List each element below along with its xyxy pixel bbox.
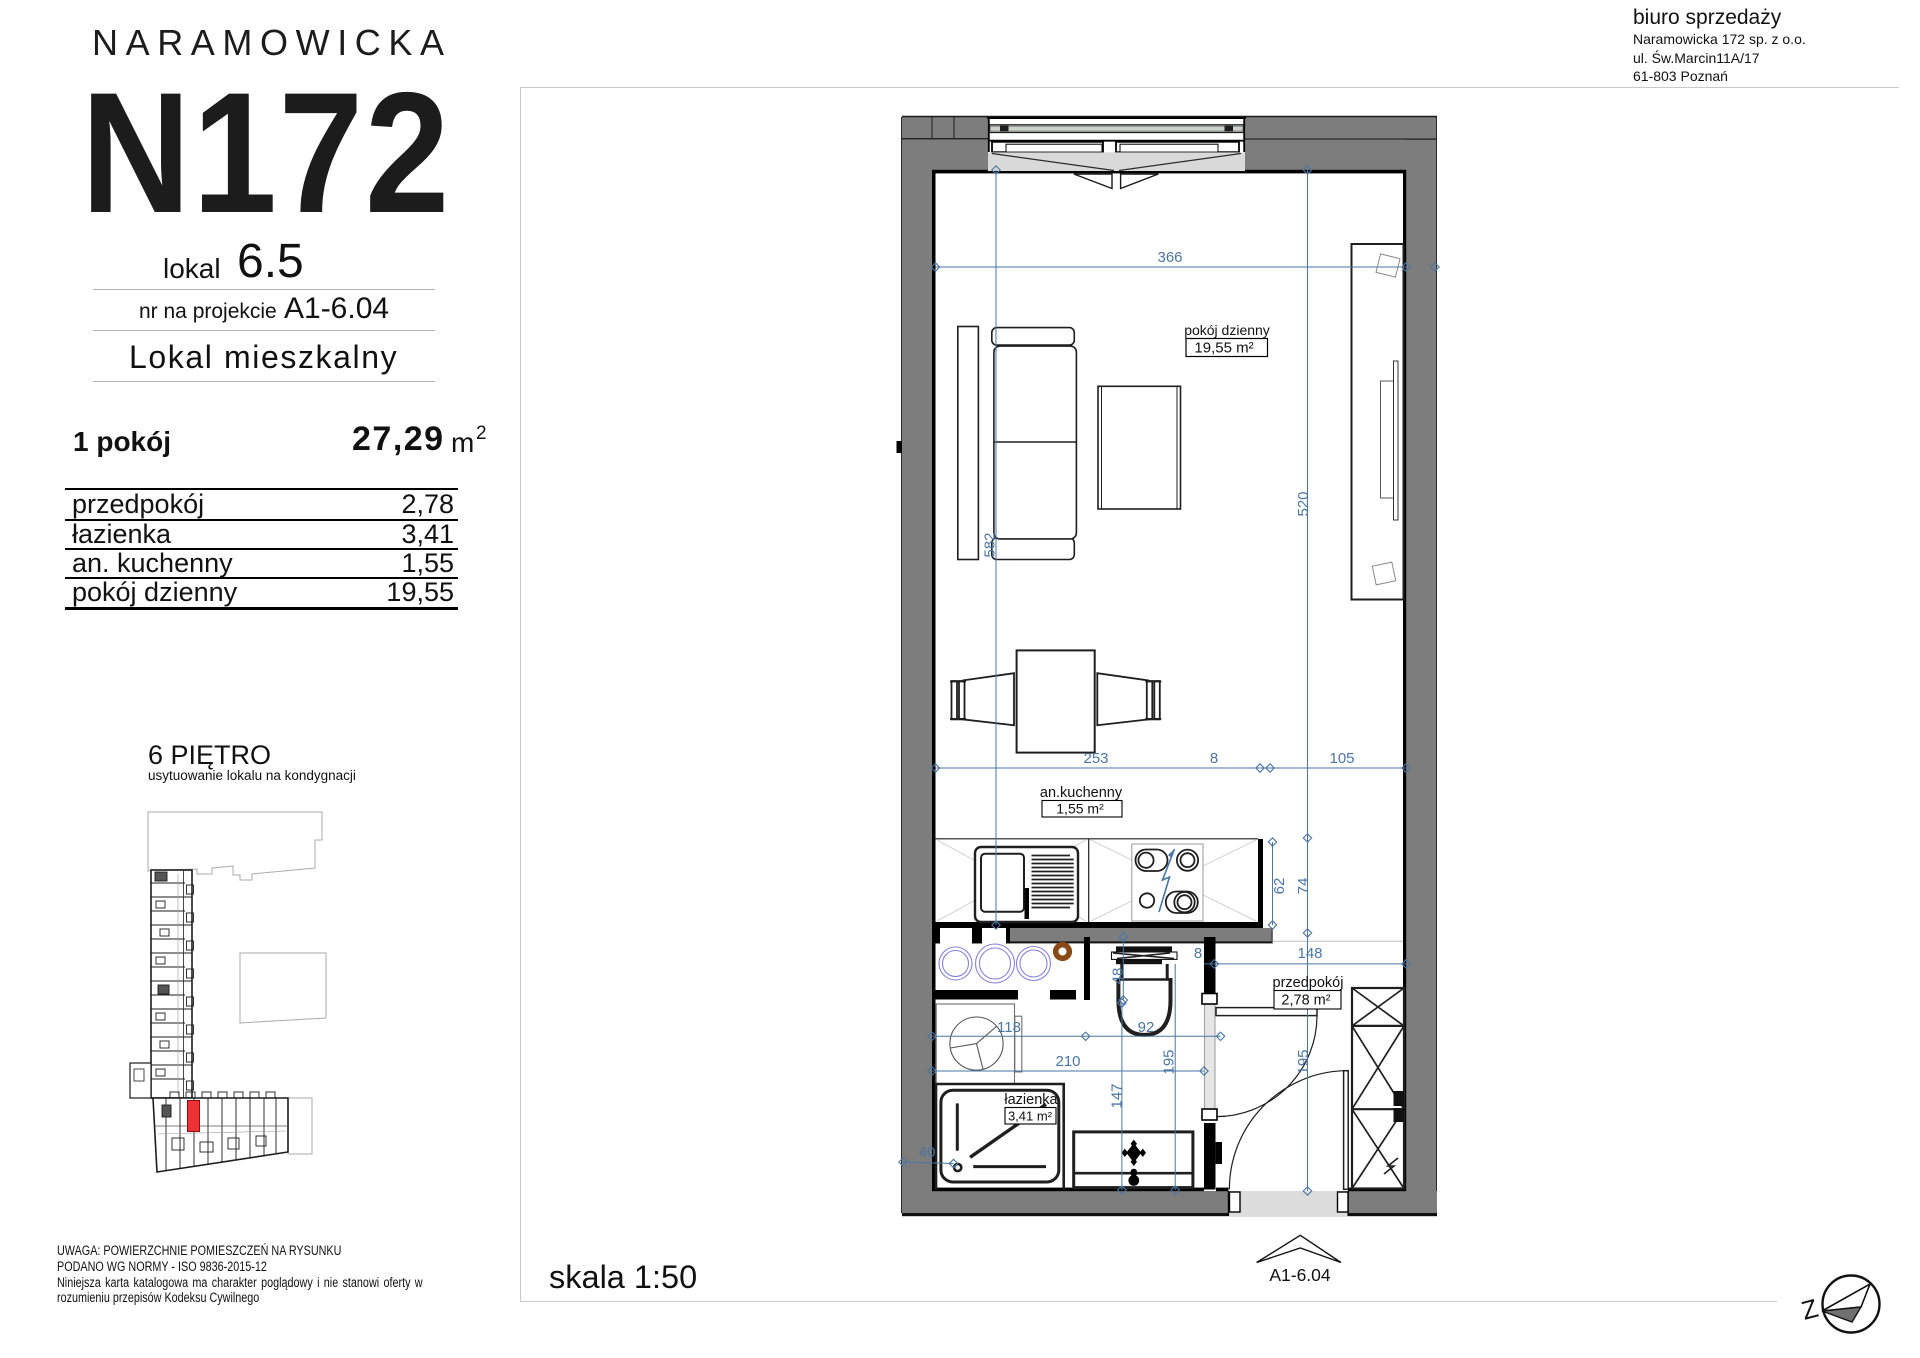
svg-text:74: 74 [1295, 878, 1312, 895]
svg-text:366: 366 [1157, 249, 1182, 266]
svg-text:147: 147 [1109, 1083, 1126, 1108]
svg-text:2,78 m²: 2,78 m² [1281, 993, 1330, 1009]
svg-text:520: 520 [1295, 491, 1312, 516]
svg-text:148: 148 [1297, 945, 1322, 962]
svg-text:Z: Z [1798, 1293, 1821, 1326]
svg-text:253: 253 [1083, 750, 1108, 767]
svg-text:195: 195 [1295, 1049, 1312, 1074]
svg-text:105: 105 [1329, 750, 1354, 767]
svg-text:92: 92 [1138, 1019, 1155, 1036]
svg-text:62: 62 [1271, 878, 1288, 895]
svg-text:łazienka: łazienka [1004, 1092, 1058, 1108]
svg-text:8: 8 [1194, 945, 1202, 962]
svg-text:195: 195 [1161, 1049, 1178, 1074]
svg-text:118: 118 [997, 1019, 1021, 1036]
svg-text:pokój dzienny: pokój dzienny [1184, 322, 1270, 338]
svg-text:210: 210 [1055, 1053, 1080, 1070]
svg-text:8: 8 [1210, 750, 1218, 767]
svg-text:48: 48 [1110, 968, 1127, 985]
svg-text:A1-6.04: A1-6.04 [1269, 1265, 1331, 1285]
svg-text:582: 582 [982, 532, 999, 557]
svg-text:40: 40 [919, 1144, 936, 1161]
svg-text:przedpokój: przedpokój [1273, 975, 1344, 991]
svg-text:1,55 m²: 1,55 m² [1056, 801, 1104, 817]
svg-text:3,41 m²: 3,41 m² [1008, 1109, 1053, 1124]
svg-text:19,55 m²: 19,55 m² [1194, 340, 1253, 357]
svg-text:an.kuchenny: an.kuchenny [1040, 785, 1123, 801]
